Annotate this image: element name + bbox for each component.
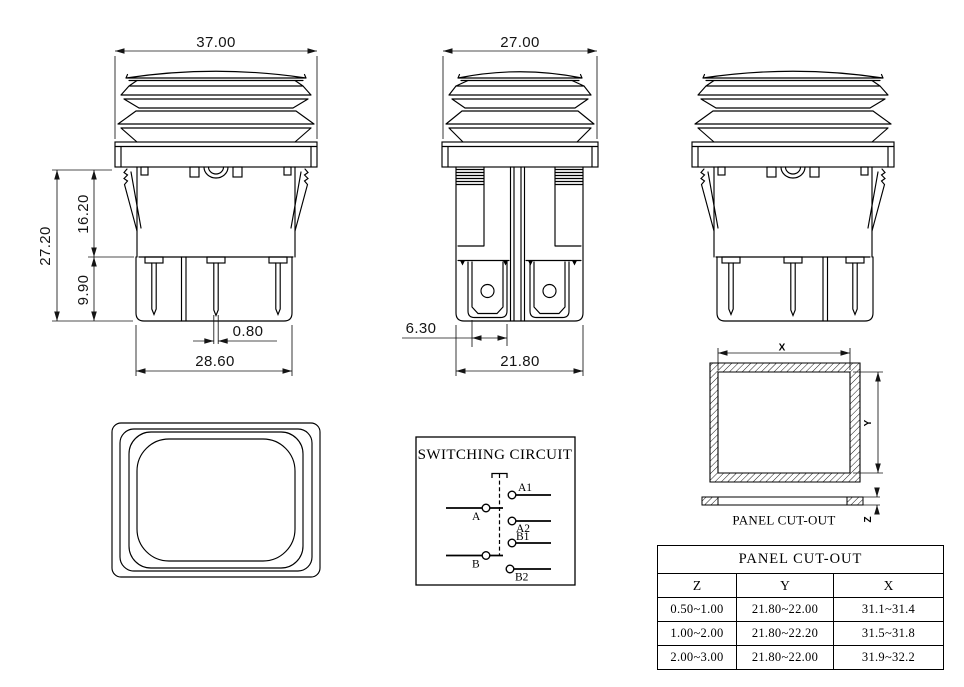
cell-y-2: 21.80~22.00 [737, 646, 834, 670]
panel-cutout-table: PANEL CUT-OUT Z Y X 0.50~1.00 21.80~22.0… [657, 545, 944, 670]
rear-view [692, 71, 894, 321]
button-top-view [112, 423, 320, 577]
dim-terminal-width-label: 6.30 [406, 320, 437, 337]
table-title: PANEL CUT-OUT [658, 546, 944, 574]
table-row: 2.00~3.00 21.80~22.00 31.9~32.2 [658, 646, 944, 670]
table-header-row: Z Y X [658, 574, 944, 598]
cell-x-2: 31.9~32.2 [834, 646, 944, 670]
table-header-x: X [834, 574, 944, 598]
cell-x-0: 31.1~31.4 [834, 598, 944, 622]
cutout-z-dim-label: Z [863, 516, 874, 522]
terminal-b2-label: B2 [515, 572, 529, 584]
dim-side-width-label: 27.00 [500, 34, 540, 51]
dim-terminal-length-label: 9.90 [75, 275, 92, 306]
engineering-drawing-sheet: 37.00 27.20 16.20 9.90 0.80 28.60 [0, 0, 964, 687]
circuit-title: SWITCHING CIRCUIT [418, 447, 573, 463]
cell-x-1: 31.5~31.8 [834, 622, 944, 646]
cell-y-0: 21.80~22.00 [737, 598, 834, 622]
table-header-y: Y [737, 574, 834, 598]
switching-circuit-diagram: SWITCHING CIRCUIT A1 A A2 B1 B B2 [416, 437, 575, 585]
terminal-b-label: B [472, 559, 480, 571]
dim-body-height-label: 16.20 [75, 194, 92, 234]
front-view: 37.00 27.20 16.20 9.90 0.80 28.60 [37, 34, 317, 376]
cell-z-2: 2.00~3.00 [658, 646, 737, 670]
terminal-a1-label: A1 [518, 482, 532, 494]
dim-total-height-label: 27.20 [37, 226, 54, 266]
table-title-row: PANEL CUT-OUT [658, 546, 944, 574]
cell-y-1: 21.80~22.20 [737, 622, 834, 646]
cutout-y-dim-label: Y [863, 419, 874, 426]
cell-z-0: 0.50~1.00 [658, 598, 737, 622]
dim-body-width-label: 28.60 [195, 353, 235, 370]
side-view: 27.00 6.30 21.80 [402, 34, 598, 376]
dim-pin-thickness-label: 0.80 [233, 323, 264, 340]
dim-side-body-width-label: 21.80 [500, 353, 540, 370]
table-row: 0.50~1.00 21.80~22.00 31.1~31.4 [658, 598, 944, 622]
panel-cutout-diagram: X Y Z PANEL CUT-OUT [702, 343, 883, 528]
table-row: 1.00~2.00 21.80~22.20 31.5~31.8 [658, 622, 944, 646]
cutout-x-dim-label: X [779, 343, 786, 354]
terminal-a-label: A [472, 511, 481, 523]
terminal-b1-label: B1 [516, 531, 530, 543]
cell-z-1: 1.00~2.00 [658, 622, 737, 646]
cutout-caption: PANEL CUT-OUT [732, 513, 835, 528]
table-header-z: Z [658, 574, 737, 598]
dim-flange-width-label: 37.00 [196, 34, 236, 51]
